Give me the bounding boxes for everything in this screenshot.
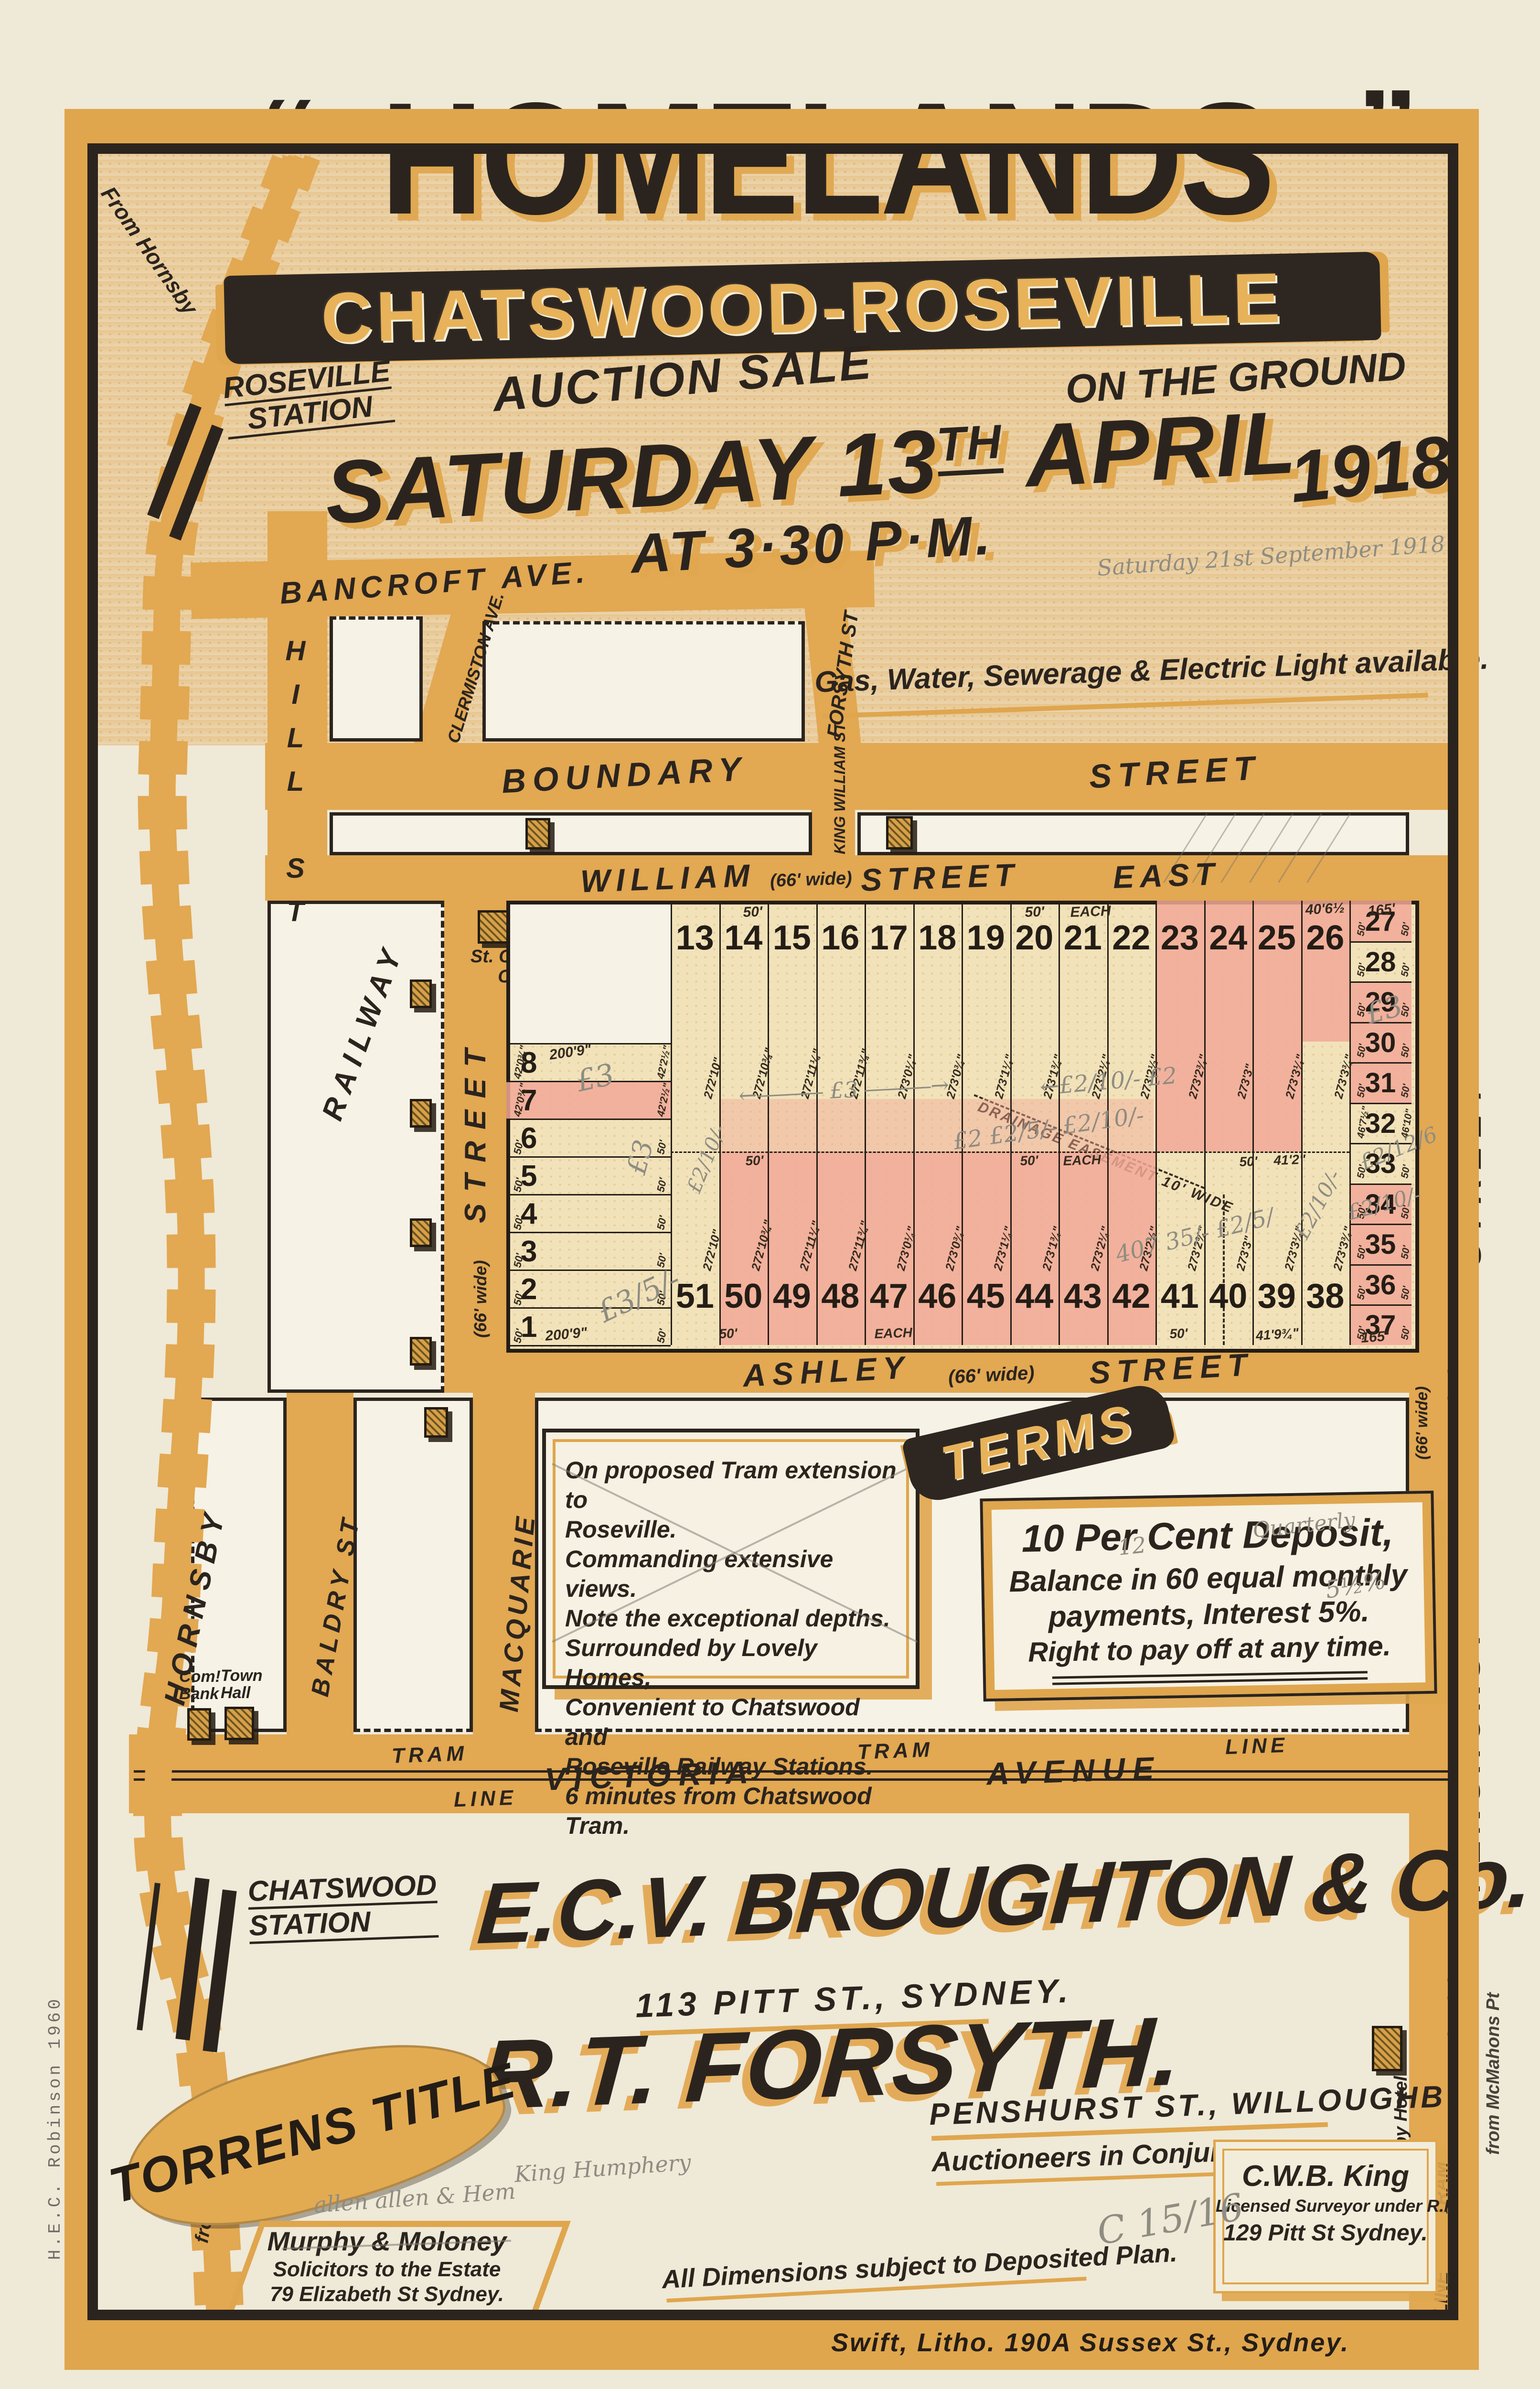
lot-dim: 50'	[1399, 962, 1413, 978]
lot-number: 46	[913, 1277, 962, 1316]
pencil-note: 5½%	[1323, 1566, 1388, 1604]
lot-dim: 50'	[1399, 1285, 1413, 1301]
grid-line-mid	[671, 1151, 1349, 1153]
lot-number: 24	[1204, 918, 1253, 958]
lot-number: 18	[913, 918, 962, 958]
dim-label: 50'	[745, 1153, 764, 1169]
dim-label: EACH	[1070, 903, 1111, 921]
dim-label: 50'	[1025, 904, 1045, 921]
dim-label: 50'	[719, 1326, 738, 1342]
lot-number: 38	[1301, 1277, 1350, 1316]
lot-dim: 50'	[1399, 1326, 1413, 1341]
grid-line	[506, 1119, 671, 1120]
pencil-note: Saturday 21st September 1918	[1096, 531, 1446, 581]
lot-dim: 50'	[654, 1177, 670, 1193]
lot-number: 22	[1107, 918, 1156, 958]
lot-dim: 50'	[1355, 1043, 1369, 1058]
lot-number: 19	[962, 918, 1010, 958]
lot-number: 25	[1252, 918, 1301, 958]
dim-label: 41'9¾"	[1255, 1325, 1299, 1344]
lot-dim: 50'	[1355, 1083, 1369, 1098]
lot-dim: 50'	[1399, 922, 1413, 937]
lot-number: 21	[1059, 918, 1107, 958]
dim-label: EACH	[874, 1325, 912, 1342]
grid-line	[506, 1232, 671, 1233]
lot-dim: 50'	[1355, 1285, 1369, 1301]
grid-line	[1349, 1184, 1412, 1185]
grid-line	[1349, 1103, 1412, 1104]
lot-dim: 50'	[1355, 1245, 1369, 1260]
pencil-note: King Humphery	[513, 2149, 692, 2187]
lot-number: 44	[1010, 1277, 1059, 1316]
lot-dim: 273'1¼"	[992, 1053, 1017, 1100]
lot-number: 41	[1155, 1277, 1204, 1316]
grid-line	[1349, 981, 1412, 983]
dim-label: 50'	[1239, 1154, 1258, 1170]
pencil-note: £2/10/-	[1290, 1166, 1347, 1243]
grid-line	[506, 1345, 671, 1346]
pencil-note: C 15/16	[1094, 2185, 1247, 2253]
lot-dim: 50'	[1399, 1245, 1413, 1260]
grid-line	[1349, 1304, 1412, 1306]
lot-number: 45	[962, 1277, 1010, 1316]
dim-label: 50'	[1020, 1153, 1038, 1169]
lot-number: 50	[719, 1277, 768, 1316]
lot-dim: 50'	[1355, 962, 1369, 978]
lot-dim: 50'	[1399, 1164, 1413, 1179]
lot-number: 23	[1155, 918, 1204, 958]
grid-line	[506, 1194, 671, 1195]
grid-line	[506, 1270, 671, 1271]
dim-label: 50'	[1169, 1326, 1188, 1342]
lot-dim: 50'	[654, 1328, 670, 1344]
lot-number: 39	[1252, 1277, 1301, 1316]
dim-label: 165'	[1360, 1328, 1389, 1346]
dim-label: 165'	[1367, 901, 1396, 920]
lot-number: 20	[1010, 918, 1059, 958]
grid-line	[1349, 1062, 1412, 1064]
lot-dim: 272'10"	[701, 1056, 726, 1100]
lot-annotations-layer: 13272'10"14272'10¾"15272'11¼"16272'11¾"1…	[0, 0, 1540, 2389]
poster-sheet: From Hornsby RAILWAY HORNSBY from Milson…	[0, 0, 1540, 2389]
lot-dim: 50'	[1399, 1043, 1413, 1058]
lot-number: 47	[865, 1277, 913, 1316]
dim-label: 40'6½	[1305, 900, 1345, 918]
lot-number: 16	[816, 918, 865, 958]
lot-dim: 50'	[654, 1215, 670, 1231]
lot-dim: 50'	[1399, 1083, 1413, 1098]
dim-label: 50'	[743, 904, 763, 921]
dim-label: EACH	[1063, 1152, 1101, 1169]
lot-number: 48	[816, 1277, 865, 1316]
dim-label: 200'9"	[545, 1324, 588, 1345]
pencil-note: £3	[621, 1137, 660, 1178]
dim-label: 41'2"	[1273, 1152, 1306, 1168]
lot-dim: 50'	[1355, 922, 1369, 937]
dim-label: 200'9"	[548, 1042, 592, 1064]
lot-number: 13	[671, 918, 719, 958]
grid-line	[1349, 1224, 1412, 1225]
grid-line	[1349, 941, 1412, 943]
pencil-note: allen allen & Hem	[313, 2178, 516, 2217]
lot-number: 15	[768, 918, 816, 958]
grid-line	[1349, 1264, 1412, 1266]
lot-number: 43	[1059, 1277, 1107, 1316]
pencil-note: Quarterly	[1251, 1507, 1357, 1542]
lot-number: 26	[1301, 918, 1350, 958]
lot-number: 14	[719, 918, 768, 958]
pencil-note: 12	[1117, 1532, 1147, 1560]
lot-number: 40	[1204, 1277, 1253, 1316]
lot-number: 49	[768, 1277, 816, 1316]
lot-number: 17	[865, 918, 913, 958]
lot-number: 42	[1107, 1277, 1156, 1316]
